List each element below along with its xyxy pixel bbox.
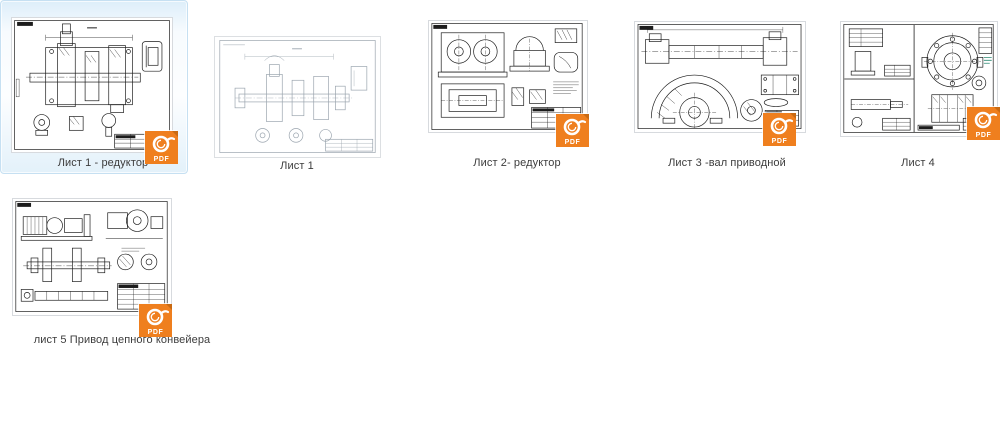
pdf-badge: PDF <box>145 131 178 164</box>
file-item-sheet5-chain-conveyor-drive[interactable]: PDF лист 5 Привод цепного конвейера <box>0 192 244 356</box>
file-item-sheet4[interactable]: PDF Лист 4 <box>836 0 1000 176</box>
drawing-sheet1 <box>215 37 380 157</box>
foxit-pdf-icon <box>145 132 178 156</box>
thumbnail-sheet5-chain-conveyor-drive <box>12 198 172 316</box>
file-item-sheet3-drive-shaft[interactable]: PDF Лист 3 -вал приводной <box>628 0 808 176</box>
pdf-badge: PDF <box>763 113 796 146</box>
pdf-badge-label: PDF <box>763 138 796 145</box>
foxit-pdf-icon <box>139 305 172 329</box>
pdf-badge: PDF <box>967 107 1000 140</box>
foxit-pdf-icon <box>967 108 1000 132</box>
pdf-badge-label: PDF <box>145 156 178 163</box>
file-caption: лист 5 Привод цепного конвейера <box>0 334 244 346</box>
foxit-pdf-icon <box>763 114 796 138</box>
file-browser-canvas: PDF Лист 1 - редуктор <box>0 0 1000 426</box>
pdf-badge-label: PDF <box>967 132 1000 139</box>
pdf-badge-label: PDF <box>556 139 589 146</box>
file-item-sheet1[interactable]: Лист 1 <box>204 0 390 176</box>
pdf-badge: PDF <box>139 304 172 337</box>
file-item-sheet2-reducer[interactable]: PDF Лист 2- редуктор <box>420 0 596 176</box>
drawing-sheet5-chain-conveyor-drive <box>13 199 171 315</box>
foxit-pdf-icon <box>556 115 589 139</box>
thumbnail-sheet1 <box>214 36 381 158</box>
file-caption: Лист 1 <box>204 160 390 172</box>
file-caption: Лист 2- редуктор <box>429 157 605 169</box>
pdf-badge: PDF <box>556 114 589 147</box>
file-caption: Лист 4 <box>836 157 1000 169</box>
file-item-sheet1-reducer[interactable]: PDF Лист 1 - редуктор <box>0 0 188 174</box>
pdf-badge-label: PDF <box>139 329 172 336</box>
file-caption: Лист 3 -вал приводной <box>637 157 817 169</box>
